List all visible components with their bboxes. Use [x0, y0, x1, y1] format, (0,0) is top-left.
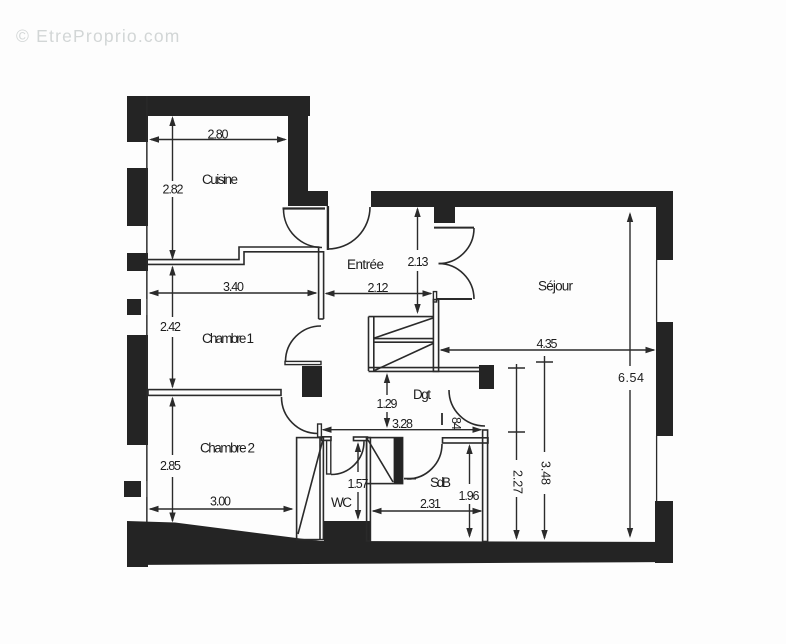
svg-text:1.57: 1.57	[348, 477, 369, 491]
svg-text:1.96: 1.96	[459, 489, 480, 503]
svg-text:1.29: 1.29	[377, 397, 398, 411]
svg-text:4.35: 4.35	[537, 337, 558, 351]
svg-text:Chambre 2: Chambre 2	[200, 441, 255, 456]
svg-text:2.31: 2.31	[420, 497, 441, 511]
svg-text:2.82: 2.82	[163, 183, 184, 197]
svg-text:2.13: 2.13	[408, 255, 429, 269]
svg-text:Séjour: Séjour	[538, 279, 574, 294]
svg-text:3.40: 3.40	[223, 280, 244, 294]
svg-text:6.54: 6.54	[618, 371, 644, 385]
svg-text:Entrée: Entrée	[347, 257, 384, 272]
svg-text:2.12: 2.12	[368, 281, 389, 295]
svg-text:© EtreProprio.com: © EtreProprio.com	[16, 26, 181, 46]
svg-text:2.27: 2.27	[511, 470, 525, 494]
svg-text:2.85: 2.85	[160, 459, 181, 473]
svg-text:2.80: 2.80	[208, 128, 229, 142]
svg-text:WC: WC	[331, 495, 352, 510]
svg-text:2.42: 2.42	[160, 320, 181, 334]
svg-text:Chambre 1: Chambre 1	[202, 331, 254, 346]
svg-text:SdB: SdB	[430, 475, 451, 490]
svg-text:3.28: 3.28	[392, 417, 413, 431]
svg-text:84: 84	[449, 417, 463, 430]
svg-text:Cuisine: Cuisine	[202, 172, 238, 187]
svg-text:3.48: 3.48	[539, 461, 553, 485]
svg-text:Dgt: Dgt	[413, 387, 431, 402]
svg-text:3.00: 3.00	[210, 495, 231, 509]
